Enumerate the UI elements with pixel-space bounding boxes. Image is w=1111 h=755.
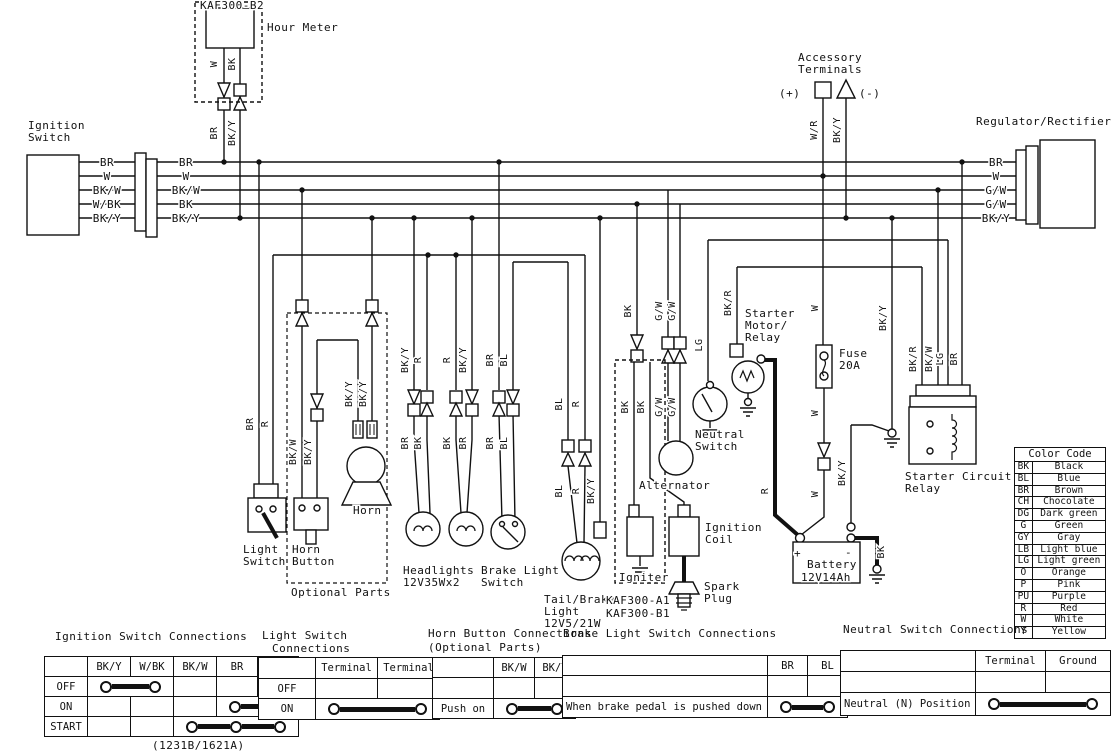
light-switch	[248, 484, 286, 538]
ignition-switch-label: Switch	[28, 131, 71, 144]
color-code-title: Color Code	[1015, 448, 1106, 462]
ignition-table-caption: (1231B/1621A)	[152, 739, 245, 752]
table-row: Terminal Ground	[841, 651, 1111, 672]
starter-circuit-relay-label: Relay	[905, 482, 941, 495]
junction-dots	[221, 159, 964, 257]
fuse-rating-label: 20A	[839, 359, 860, 372]
hour-meter-model-label: KAF300-B2	[200, 0, 264, 12]
wire-label: BR	[485, 436, 496, 450]
wire-label: W	[103, 170, 110, 183]
wire-label: BK	[620, 400, 631, 413]
battery-plus-label: +	[794, 547, 801, 560]
igniter-model-label: KAF300-A1	[606, 594, 670, 607]
headlights-rating-label: 12V35Wx2	[403, 576, 460, 589]
color-code-row: DGDark green	[1015, 509, 1106, 521]
brake-table-title: Brake Light Switch Connections	[563, 627, 777, 640]
wire-label: BL	[499, 436, 510, 449]
connection-bar	[319, 703, 436, 715]
wire-label: BK/Y	[303, 439, 314, 465]
schematic-canvas: KAF300-B2Hour MeterIgnitionSwitchAccesso…	[0, 0, 1111, 632]
wire-label: BR	[989, 156, 1003, 169]
starter-motor-relay	[730, 344, 765, 416]
wire-label: BK/Y	[586, 478, 597, 504]
wire-label: G/W	[985, 184, 1006, 197]
wire-label: W	[992, 170, 999, 183]
color-code-row: LGLight green	[1015, 556, 1106, 568]
wire-label: BK/Y	[400, 347, 411, 373]
table-row: ON	[259, 699, 440, 720]
wire-label: BR	[485, 353, 496, 367]
brake-connections-table: BR BL When brake pedal is pushed down	[562, 655, 848, 718]
wire-label: R	[571, 400, 582, 407]
wire-label: W	[810, 409, 821, 416]
light-table-title: Light Switch	[262, 629, 347, 642]
color-code-row: OOrange	[1015, 568, 1106, 580]
wire-label: BK/R	[908, 345, 919, 372]
table-row	[563, 676, 848, 697]
optional-parts-label: Optional Parts	[291, 586, 391, 599]
horn-button-label: Button	[292, 555, 335, 568]
wire-label: W	[209, 60, 220, 67]
regulator-rectifier-label: Regulator/Rectifier	[976, 115, 1111, 128]
spark-plug-label: Plug	[704, 592, 733, 605]
alternator	[659, 441, 693, 475]
wire-label: BL	[554, 397, 565, 410]
color-code-row: CHChocolate	[1015, 497, 1106, 509]
wire-label: BK	[636, 400, 647, 413]
wire-label: BK/Y	[832, 117, 843, 143]
starter-circuit-relay	[884, 385, 976, 464]
color-code-row: BKBlack	[1015, 462, 1106, 474]
spark-plug	[669, 582, 699, 610]
horn-label: Horn	[353, 504, 382, 517]
connection-bar	[497, 703, 572, 715]
wire-label: BL	[554, 484, 565, 497]
wire-label: W/R	[809, 120, 820, 140]
wire-label: BK/Y	[458, 347, 469, 373]
light-connections-table: Terminal Terminal OFF ON	[258, 657, 440, 720]
accessory-terminals	[815, 80, 855, 98]
wire-label: W	[810, 490, 821, 497]
table-row: OFF	[259, 679, 440, 699]
wire-label: G/W	[654, 397, 665, 417]
wire-label: BR	[209, 126, 220, 140]
wire-label: LG	[694, 338, 705, 351]
battery-label: Battery	[807, 558, 857, 571]
color-code-row: GGreen	[1015, 520, 1106, 532]
igniter-label: Igniter	[619, 571, 669, 584]
table-row: Push on	[433, 699, 576, 719]
wire-label: BK/R	[723, 289, 734, 316]
wire-label: LG	[935, 352, 946, 365]
wire-label: BK/Y	[227, 120, 238, 146]
alternator-label: Alternator	[639, 479, 710, 492]
ignition-coil-label: Coil	[705, 533, 734, 546]
horn-connections-table: BK/W BK/Y Push on	[432, 657, 576, 719]
wire-label: BK/W	[288, 438, 299, 465]
table-row	[433, 678, 576, 699]
wire-connectors	[218, 83, 830, 470]
wire-label: G/W	[985, 198, 1006, 211]
connection-bar	[771, 701, 844, 713]
connection-bar	[177, 721, 295, 733]
light-table-title: Connections	[272, 642, 350, 655]
wire-label: BK	[623, 304, 634, 317]
starter-motor-relay-label: Relay	[745, 331, 781, 344]
wire-label: W	[810, 304, 821, 311]
wire-label: BK	[442, 436, 453, 449]
color-code-row: RRed	[1015, 603, 1106, 615]
wiring-diagram-page: KAF300-B2Hour MeterIgnitionSwitchAccesso…	[0, 0, 1111, 755]
table-row: When brake pedal is pushed down	[563, 697, 848, 718]
color-code-row: GYGray	[1015, 532, 1106, 544]
wire-label: R	[413, 356, 424, 363]
hour-meter-label: Hour Meter	[267, 21, 338, 34]
wire-bus	[79, 162, 1016, 218]
wire-label: R	[442, 356, 453, 363]
connection-bar	[979, 698, 1107, 710]
light-switch-label: Switch	[243, 555, 286, 568]
color-code-row: LBLight blue	[1015, 544, 1106, 556]
wire-label: BR	[949, 352, 960, 366]
wire-label: R	[571, 487, 582, 494]
wire-label: G/W	[667, 301, 678, 321]
wire-label: BK	[227, 57, 238, 70]
horn-table-subtitle: (Optional Parts)	[428, 641, 542, 654]
wire-label: BK	[413, 436, 424, 449]
color-code-row: BRBrown	[1015, 485, 1106, 497]
regulator-rectifier	[1016, 140, 1095, 228]
wire-label: R	[260, 420, 271, 427]
wire-label: BK	[876, 545, 887, 558]
wire-label: BK/Y	[837, 460, 848, 486]
igniter	[615, 360, 665, 583]
wire-label: R	[760, 487, 771, 494]
wire-label: BK	[179, 198, 193, 211]
wire-label: BR	[179, 156, 193, 169]
color-code-table: Color Code BKBlackBLBlueBRBrownCHChocola…	[1014, 447, 1106, 639]
wire-label: BK/W	[924, 345, 935, 372]
wire-label: BL	[499, 353, 510, 366]
headlights	[406, 512, 483, 546]
wire-label: BK/W	[172, 184, 201, 197]
battery-rating-label: 12V14Ah	[801, 571, 851, 584]
horn-button	[294, 498, 328, 544]
wire-label: BR	[458, 436, 469, 450]
color-code-row: BLBlue	[1015, 473, 1106, 485]
brake-light-switch	[491, 515, 525, 549]
connection-bar	[91, 681, 170, 693]
table-row: Neutral (N) Position	[841, 693, 1111, 716]
wire-label: BR	[100, 156, 114, 169]
table-row: BR BL	[563, 656, 848, 676]
ignition-coil	[669, 505, 699, 556]
accessory-plus-label: (+)	[779, 87, 800, 100]
wire-branches	[224, 48, 962, 543]
wire-label: BR	[400, 436, 411, 450]
table-row: Terminal Terminal	[259, 658, 440, 679]
neutral-table-title: Neutral Switch Connections	[843, 623, 1028, 636]
ignition-table-title: Ignition Switch Connections	[55, 630, 247, 643]
wire-label: BK/Y	[93, 212, 122, 225]
accessory-minus-label: (-)	[859, 87, 880, 100]
horn	[342, 421, 391, 505]
wire-label: W/BK	[93, 198, 122, 211]
wire-label: BK/Y	[172, 212, 201, 225]
brake-light-switch-label: Switch	[481, 576, 524, 589]
wire-label: BK/Y	[344, 381, 355, 407]
color-code-row: PPink	[1015, 579, 1106, 591]
wire-label: BR	[245, 417, 256, 431]
igniter-model-label: KAF300-B1	[606, 607, 670, 620]
wire-label: BK/W	[93, 184, 122, 197]
color-code-row: PUPurple	[1015, 591, 1106, 603]
neutral-switch-label: Switch	[695, 440, 738, 453]
wire-label: G/W	[654, 301, 665, 321]
accessory-terminals-label: Terminals	[798, 63, 862, 76]
neutral-connections-table: Terminal Ground Neutral (N) Position	[840, 650, 1111, 716]
table-row	[841, 672, 1111, 693]
wire-label: G/W	[667, 397, 678, 417]
wire-label: BK/Y	[358, 381, 369, 407]
wire-label: BK/Y	[982, 212, 1011, 225]
table-row: BK/W BK/Y	[433, 658, 576, 678]
fuse	[816, 345, 832, 388]
wire-label: BK/Y	[878, 305, 889, 331]
wire-label: W	[182, 170, 189, 183]
